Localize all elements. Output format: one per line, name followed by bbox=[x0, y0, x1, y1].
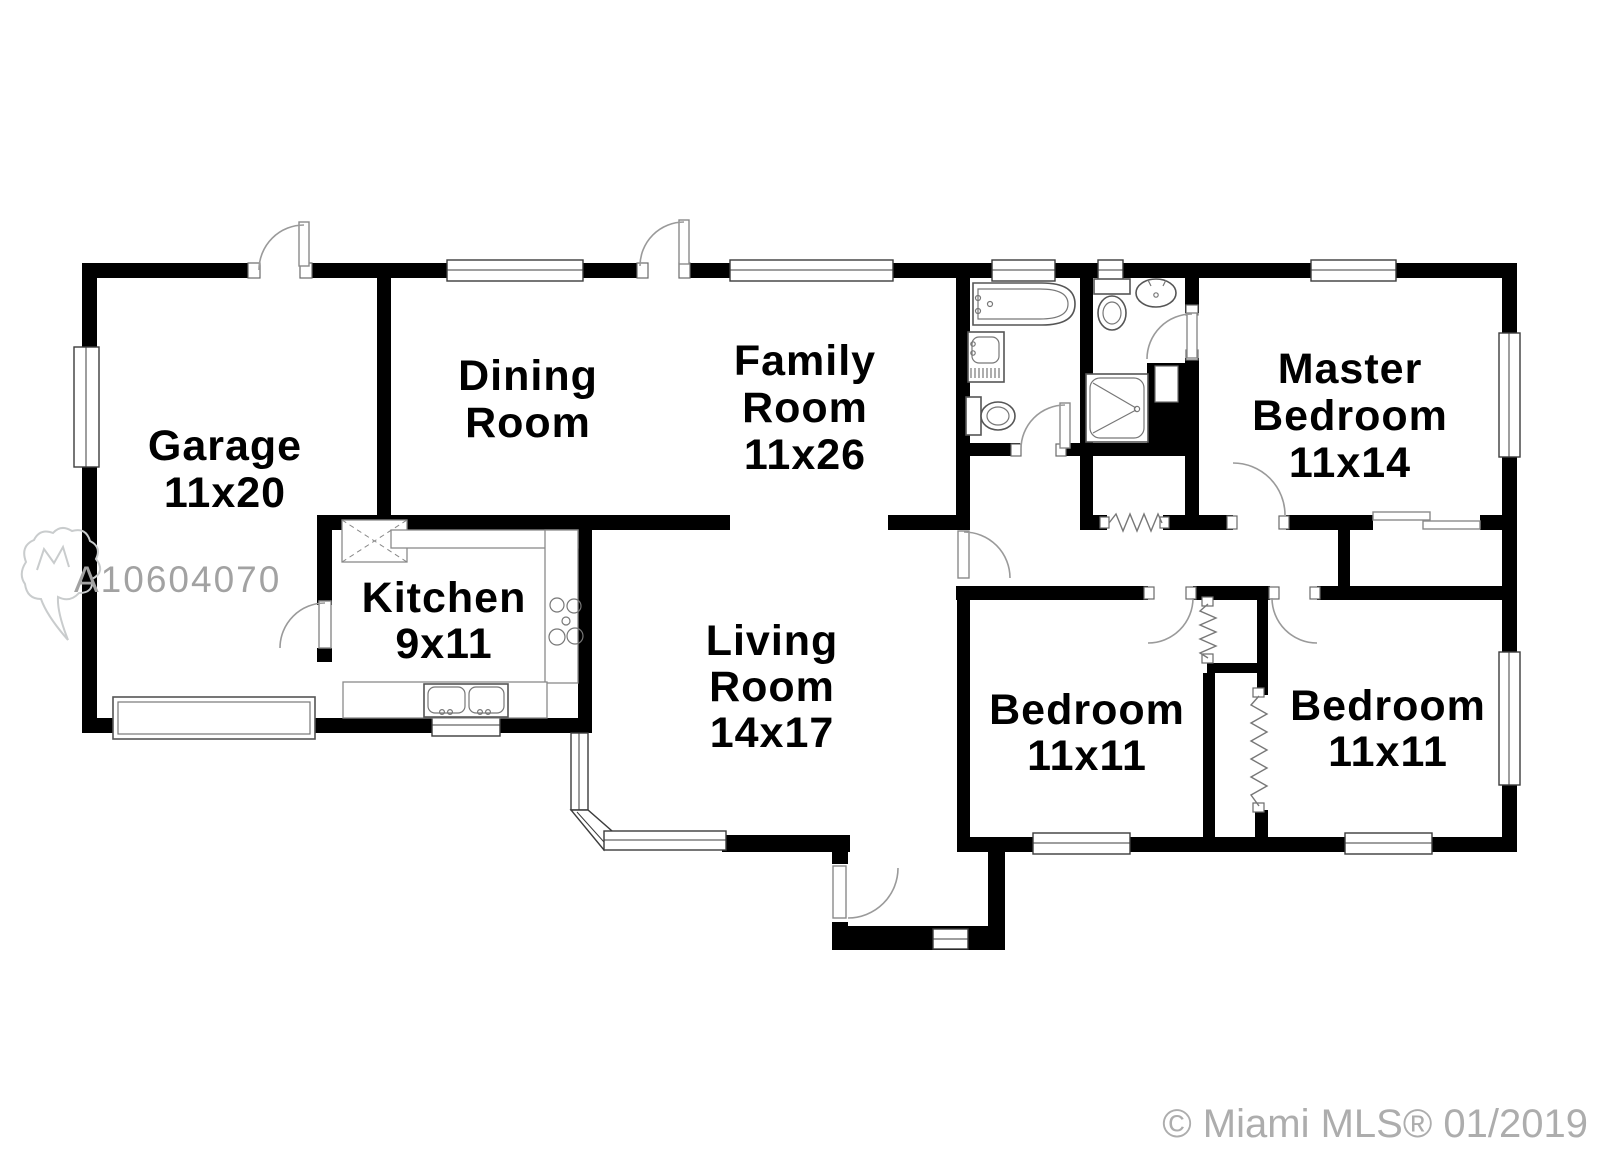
wall-hall-bottom-a bbox=[956, 586, 1148, 600]
dining-label-1: Dining bbox=[458, 352, 598, 400]
family-label-1: Family bbox=[734, 337, 876, 385]
wall-entry-right bbox=[988, 837, 1005, 950]
window-bedroom-right-bottom bbox=[1345, 833, 1432, 854]
garage-size: 11x20 bbox=[164, 469, 286, 517]
window-bedroom-left-bottom bbox=[1033, 833, 1130, 854]
wall-entry-bottom bbox=[832, 926, 1005, 950]
wall-kitchen-left-stub bbox=[317, 648, 332, 662]
wall-kitchen-left-upper bbox=[317, 515, 332, 605]
bedroom-left-door bbox=[1144, 587, 1196, 643]
master-toilet bbox=[1094, 279, 1130, 330]
shower bbox=[1086, 374, 1148, 442]
window-dining bbox=[447, 260, 583, 281]
wall-bedroom-left-east bbox=[1203, 673, 1215, 837]
hall-bath-fixtures bbox=[966, 283, 1075, 435]
bedroom-right-size: 11x11 bbox=[1328, 728, 1448, 776]
wall-closet-a-right bbox=[1257, 592, 1268, 695]
master-bath-door bbox=[1147, 305, 1198, 360]
family-label-2: Room bbox=[742, 384, 868, 432]
hall-bath-toilet bbox=[966, 397, 1015, 435]
floor-plan-page: Garage 11x20 Dining Room Family Room 11x… bbox=[0, 0, 1600, 1163]
master-label-2: Bedroom bbox=[1252, 392, 1448, 440]
living-label-1: Living bbox=[706, 617, 839, 665]
linen-closet-accordion-door bbox=[1100, 514, 1169, 531]
kitchen-double-sink bbox=[424, 684, 508, 717]
wall-garage-dining bbox=[377, 278, 391, 517]
bedroom-left-label: Bedroom bbox=[989, 686, 1185, 734]
window-master-bath bbox=[1098, 260, 1123, 281]
window-entry-bottom bbox=[933, 929, 968, 949]
closet-a-accordion-door bbox=[1200, 597, 1216, 663]
master-bedroom-door bbox=[1227, 463, 1289, 529]
wall-living-bottom bbox=[722, 835, 850, 852]
window-hall-bath bbox=[992, 260, 1055, 281]
window-family bbox=[730, 260, 893, 281]
window-garage-left bbox=[74, 347, 99, 467]
family-size: 11x26 bbox=[744, 431, 866, 479]
wall-hall-top-d bbox=[1480, 515, 1502, 530]
master-sink bbox=[1136, 279, 1176, 307]
wall-bedroom-left-west bbox=[957, 586, 970, 837]
wall-master-closet-left bbox=[1338, 530, 1350, 586]
master-closet-bypass-doors bbox=[1373, 512, 1480, 529]
closet-b-accordion-door bbox=[1251, 688, 1267, 812]
listing-id-watermark: A10604070 bbox=[74, 559, 281, 600]
wall-kitchen-right bbox=[578, 522, 592, 733]
window-living-bay bbox=[571, 733, 726, 850]
garage-door bbox=[113, 697, 315, 739]
wall-hall-top-c bbox=[1286, 515, 1373, 530]
window-master-top bbox=[1311, 260, 1396, 281]
kitchen-label: Kitchen bbox=[362, 574, 527, 622]
window-bedroom-right-east bbox=[1499, 652, 1520, 785]
garage-label: Garage bbox=[148, 422, 302, 470]
master-size: 11x14 bbox=[1289, 439, 1411, 487]
hall-bath-door bbox=[1011, 403, 1070, 456]
living-size: 14x17 bbox=[710, 709, 835, 757]
garage-kitchen-door bbox=[280, 601, 331, 648]
dining-label-2: Room bbox=[465, 399, 591, 447]
kitchen-size: 9x11 bbox=[395, 620, 492, 668]
chase-niche bbox=[1155, 366, 1178, 402]
hallway-door bbox=[958, 531, 1010, 578]
wall-hall-top-b bbox=[1163, 515, 1233, 530]
wall-closet-divider bbox=[1207, 663, 1268, 673]
front-door bbox=[833, 866, 898, 918]
bathtub bbox=[973, 283, 1075, 325]
watermark: A10604070 bbox=[22, 528, 282, 640]
window-master-right bbox=[1499, 333, 1520, 457]
doors bbox=[248, 220, 1320, 918]
wall-hall-bottom-c bbox=[1317, 586, 1502, 600]
wall-closet-b-stub bbox=[1255, 810, 1268, 837]
bedroom-left-size: 11x11 bbox=[1027, 732, 1147, 780]
floor-plan-drawing: Garage 11x20 Dining Room Family Room 11x… bbox=[0, 0, 1600, 1163]
bedroom-right-door bbox=[1269, 587, 1320, 643]
living-label-2: Room bbox=[709, 663, 835, 711]
master-label-1: Master bbox=[1278, 345, 1423, 393]
wall-left bbox=[82, 263, 97, 733]
bedroom-right-label: Bedroom bbox=[1290, 682, 1486, 730]
hall-bath-vanity-sink bbox=[968, 332, 1004, 382]
copyright-text: © Miami MLS® 01/2019 bbox=[1162, 1102, 1588, 1146]
